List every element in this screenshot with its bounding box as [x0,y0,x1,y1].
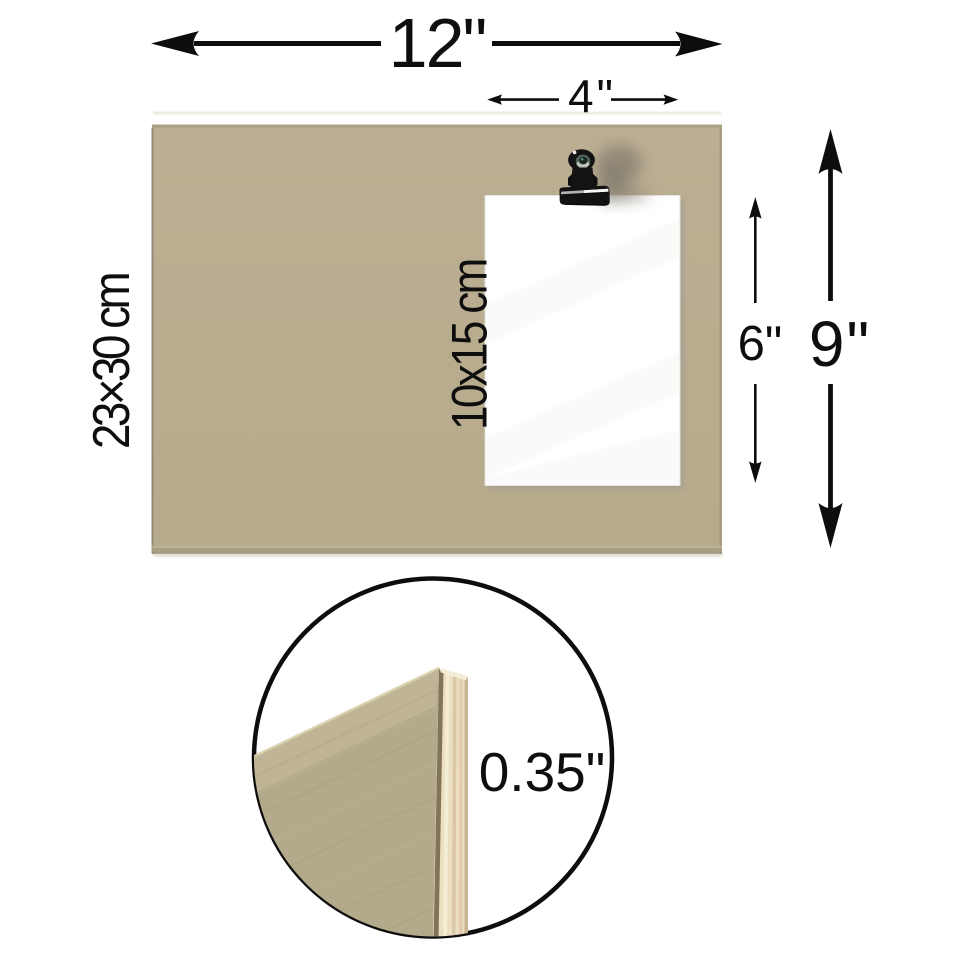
svg-text:6": 6" [738,317,783,371]
svg-text:10x15 cm: 10x15 cm [441,260,497,430]
svg-text:0.35": 0.35" [479,741,606,803]
svg-text:23×30 cm: 23×30 cm [83,274,140,449]
svg-text:4": 4" [568,70,616,122]
svg-text:12": 12" [389,4,486,82]
svg-text:9": 9" [809,308,871,380]
